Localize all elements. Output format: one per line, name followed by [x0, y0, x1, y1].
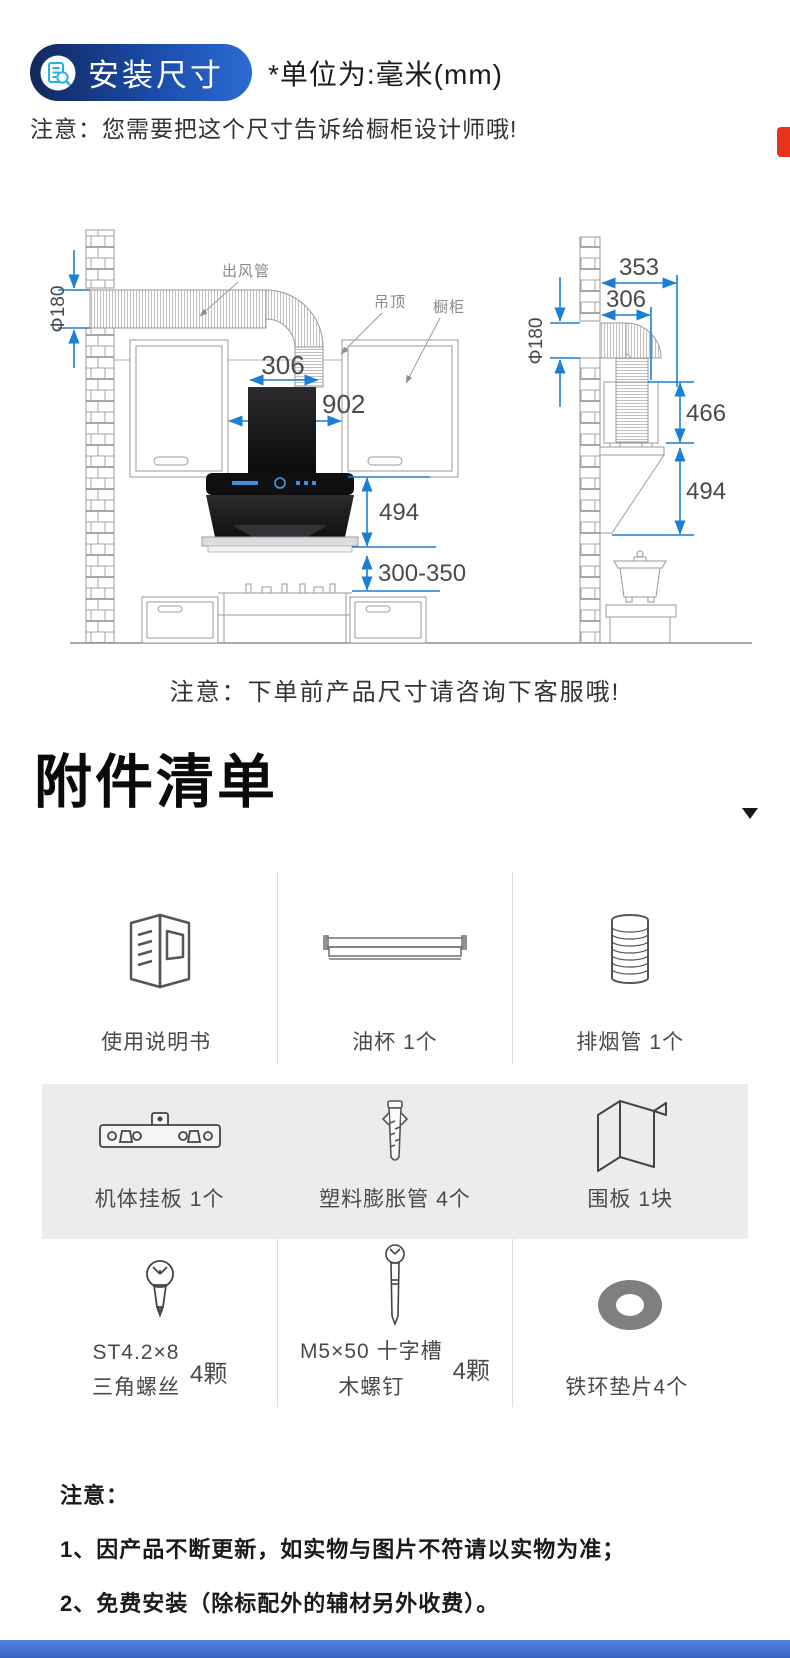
dim-front-duct-width: 306 [261, 350, 304, 380]
side-duct-elbow [626, 323, 661, 358]
hood-oil-tray [202, 537, 358, 546]
dim-front-hood-to-cooktop: 300-350 [378, 560, 466, 587]
side-hood-profile [600, 382, 664, 533]
oil-cup-icon [320, 934, 470, 964]
base-cabinet-left [142, 597, 218, 643]
accessory-label: 机体挂板 [95, 1183, 183, 1213]
accessory-manual: 使用说明书 [42, 872, 277, 1064]
dim-side-upper-height: 466 [686, 400, 726, 427]
designer-note: 注意：您需要把这个尺寸告诉给橱柜设计师哦! [30, 110, 517, 144]
washer-icon [595, 1277, 665, 1333]
accessory-label: 使用说明书 [101, 1026, 211, 1056]
footer-notes-title: 注意： [60, 1478, 740, 1510]
accessory-mounting-plate: 机体挂板1个 [42, 1084, 277, 1239]
accessory-qty: 4颗 [190, 1354, 227, 1389]
pot-on-stand [606, 551, 676, 643]
accessory-label: 铁环垫片4个 [565, 1371, 688, 1401]
base-cabinet-right [350, 597, 426, 643]
accessory-label: ST4.2×8 [92, 1341, 179, 1365]
accessories-row-2: 机体挂板1个 塑料膨胀管4个 围板1块 [42, 1084, 748, 1239]
wall-side [580, 237, 600, 321]
long-screw-icon [381, 1244, 409, 1330]
wall-front [86, 230, 114, 288]
side-view: 353 306 Φ180 466 494 [526, 237, 726, 643]
dim-side-duct-depth: 306 [606, 286, 646, 313]
size-service-note: 注意：下单前产品尺寸请咨询下客服哦! [0, 672, 790, 707]
installation-diagram: Φ180 306 902 494 300-350 出风管 吊顶 橱柜 [0, 225, 790, 650]
manual-icon [121, 907, 199, 991]
upper-cabinet-left [130, 340, 228, 477]
accessories-row-3: ST4.2×8 三角螺丝 4颗 M5×50 十字槽 木螺钉 [42, 1239, 748, 1407]
floating-widget-tab[interactable] [777, 127, 790, 157]
accessory-short-screw: ST4.2×8 三角螺丝 4颗 [42, 1239, 277, 1407]
accessories-title: 附件清单 [34, 735, 278, 819]
hood-top-panel [206, 473, 354, 495]
accessory-label: M5×50 十字槽 [300, 1335, 443, 1365]
label-ceiling: 吊顶 [374, 294, 406, 311]
unit-note: *单位为:毫米(mm) [268, 53, 503, 93]
dim-side-duct-diameter: Φ180 [526, 318, 547, 365]
accessory-expansion-anchor: 塑料膨胀管4个 [277, 1084, 512, 1239]
accessory-label: 塑料膨胀管 [319, 1183, 429, 1213]
accessory-label: 围板 [587, 1183, 631, 1213]
side-duct-stub [600, 323, 626, 358]
install-size-badge: 安装尺寸 [30, 44, 252, 101]
label-cabinet: 橱柜 [433, 299, 465, 316]
accessories-row-1: 使用说明书 油杯1个 排烟管1个 [42, 872, 748, 1064]
section-header: 安装尺寸 *单位为:毫米(mm) [30, 44, 503, 101]
accessory-washer: 铁环垫片4个 [513, 1239, 748, 1407]
accessory-enclosure-panel: 围板1块 [513, 1084, 748, 1239]
accessory-qty: 4颗 [453, 1351, 490, 1386]
accessory-label: 油杯 [352, 1026, 396, 1056]
dim-side-lower-height: 494 [686, 478, 726, 505]
cooktop-counter [218, 584, 352, 643]
footer-notes: 注意： 1、因产品不断更新，如实物与图片不符请以实物为准； 2、免费安装（除标配… [60, 1478, 740, 1618]
dim-side-total-depth: 353 [619, 254, 659, 281]
accessory-exhaust-pipe: 排烟管1个 [513, 872, 748, 1064]
footer-note-2: 2、免费安装（除标配外的辅材另外收费）。 [60, 1586, 740, 1618]
exhaust-pipe-icon [608, 912, 652, 986]
accessory-long-screw: M5×50 十字槽 木螺钉 4颗 [277, 1239, 512, 1407]
duct-horizontal [90, 290, 266, 328]
section-divider-bar [0, 1640, 790, 1658]
enclosure-panel-icon [590, 1095, 670, 1173]
expansion-anchor-icon [380, 1099, 410, 1169]
dim-front-hood-height: 494 [379, 499, 419, 526]
mounting-plate-icon [97, 1109, 223, 1159]
install-size-badge-label: 安装尺寸 [88, 50, 224, 95]
product-detail-page: 安装尺寸 *单位为:毫米(mm) 注意：您需要把这个尺寸告诉给橱柜设计师哦! [0, 0, 790, 1658]
accessories-grid: 使用说明书 油杯1个 排烟管1个 [42, 872, 748, 1407]
dim-front-opening-width: 902 [322, 389, 365, 419]
label-duct: 出风管 [222, 263, 270, 280]
accessory-label: 排烟管 [576, 1026, 642, 1056]
short-screw-icon [140, 1259, 180, 1321]
accessory-oil-cup: 油杯1个 [277, 872, 512, 1064]
hood-chimney [248, 387, 316, 475]
dim-front-duct-diameter: Φ180 [48, 286, 69, 333]
chevron-down-icon[interactable] [742, 808, 758, 819]
footer-note-1: 1、因产品不断更新，如实物与图片不符请以实物为准； [60, 1532, 740, 1564]
document-magnifier-icon [38, 53, 78, 93]
duct-elbow [266, 290, 323, 347]
